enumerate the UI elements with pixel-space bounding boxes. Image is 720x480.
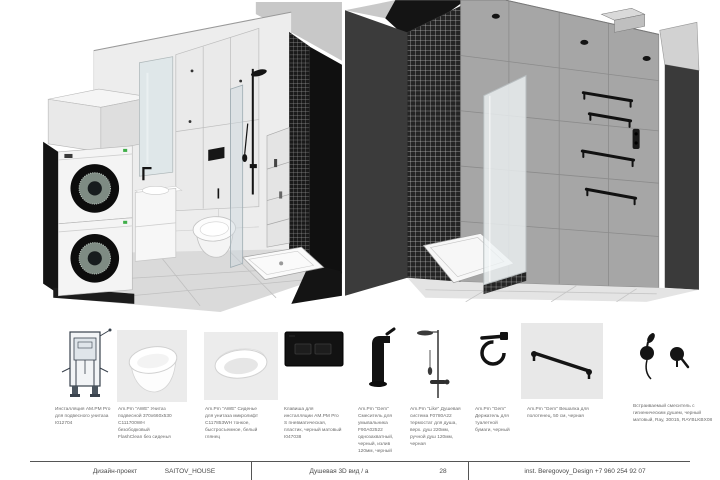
toilet-seat-thumbnail (204, 332, 278, 400)
product-item: Am.Pm "AWE" Сиденье для унитаза микролиф… (204, 332, 278, 462)
mosaic-wall (289, 32, 309, 265)
hand-shower (242, 154, 247, 162)
product-caption: Встраиваемый смеситель с гигиеническим д… (633, 404, 715, 425)
washer-dryer-stack (58, 146, 132, 296)
cabinet-knob (239, 80, 242, 83)
basin-faucet-thumbnail (356, 326, 396, 392)
tall-cabinets (176, 28, 259, 210)
washer-led (123, 149, 127, 152)
flush-plate-thumbnail (283, 330, 345, 368)
designer-contact: inst. Beregovoy_Design +7 960 254 92 07 (478, 468, 692, 475)
product-item: Am.Pm "Gem" Смеситель для умывальника F9… (356, 326, 400, 460)
glass-partition (231, 85, 243, 267)
title-block-divider (468, 461, 469, 480)
product-caption: Инсталляция AM.PM Pro для подвесного уни… (55, 407, 113, 428)
product-caption: Am.Pm "AWE" Сиденье для унитаза микролиф… (205, 407, 265, 442)
washer-display (64, 154, 72, 158)
product-caption: Клавиша для инсталляции AM.PM Pro S пнев… (284, 407, 342, 442)
towel-bar-thumbnail (521, 323, 603, 399)
product-item: Am.Pm "AWE" Унитаз подвесной 370х660х530… (117, 330, 187, 460)
spotlight (643, 56, 651, 61)
product-item: Am.Pm "Gem" Вешалка для полотенец, 50 см… (521, 323, 603, 460)
product-item: Инсталляция AM.PM Pro для подвесного уни… (52, 328, 118, 458)
product-caption: Am.Pm "Gem" Держатель для туалетной бума… (475, 407, 511, 435)
shower-3d-view-right (345, 0, 707, 302)
sheet-title: Душевая 3D вид / а (280, 468, 398, 475)
right-dark-panel (665, 65, 699, 290)
design-sheet: Инсталляция AM.PM Pro для подвесного уни… (0, 0, 720, 480)
product-item: Клавиша для инсталляции AM.PM Pro S пнев… (283, 330, 345, 460)
black-side-wall (310, 47, 342, 274)
bottle (274, 159, 277, 167)
bottle (279, 191, 282, 198)
mirror (139, 57, 172, 177)
spotlight (580, 40, 588, 45)
product-caption: Am.Pm "Gem" Смеситель для умывальника F9… (358, 407, 400, 456)
wall-hung-toilet-thumbnail (117, 330, 187, 402)
left-dark-wall (43, 142, 58, 294)
shower-mixer-trim (633, 129, 640, 149)
product-item: Am.Pm "Like" Душевая система F0780A22 те… (410, 324, 464, 460)
dryer-led (123, 221, 127, 224)
cabinet-knob (189, 120, 192, 123)
installation-frame-thumbnail (52, 328, 118, 404)
shower-niche (267, 128, 289, 248)
product-caption: Am.Pm "AWE" Унитаз подвесной 370х660х530… (118, 407, 174, 442)
spotlight (492, 14, 500, 19)
hygienic-shower-thumbnail (627, 330, 703, 382)
product-caption: Am.Pm "Like" Душевая система F0780A22 те… (410, 407, 464, 449)
charcoal-left-wall (345, 10, 407, 296)
sheet-number: 28 (428, 468, 458, 475)
project-name: SAITOV_HOUSE (125, 468, 255, 475)
product-item: Встраиваемый смеситель с гигиеническим д… (627, 330, 715, 460)
product-item: Am.Pm "Gem" Держатель для туалетной бума… (472, 326, 516, 460)
drain (279, 261, 283, 265)
product-caption: Am.Pm "Gem" Вешалка для полотенец, 50 см… (527, 407, 603, 421)
title-block-border (30, 461, 690, 462)
bathroom-3d-view-left (38, 2, 342, 314)
basin (142, 186, 168, 194)
upper-cabinet (48, 89, 151, 152)
right-ceiling-wedge (660, 22, 699, 70)
cabinet-knob (191, 69, 194, 72)
paper-holder-thumbnail (472, 326, 512, 370)
shower-system-thumbnail (410, 324, 452, 404)
